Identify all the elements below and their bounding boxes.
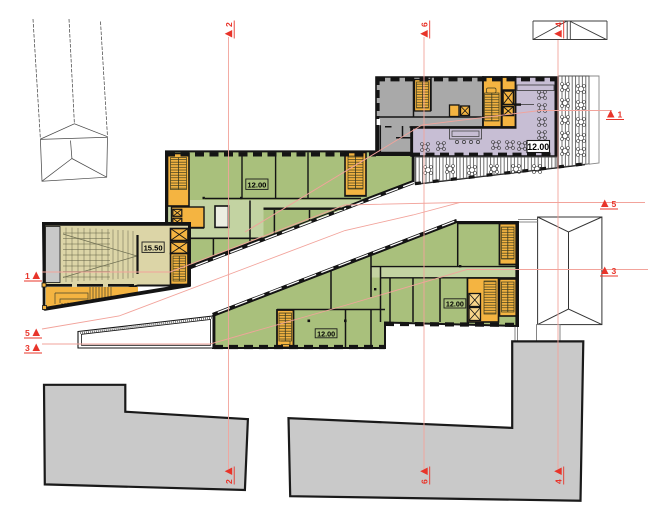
svg-text:12.00: 12.00: [247, 180, 266, 189]
svg-text:6: 6: [420, 479, 430, 484]
svg-text:12.00: 12.00: [527, 142, 549, 152]
svg-text:5: 5: [612, 199, 617, 209]
svg-text:2: 2: [224, 479, 234, 484]
svg-text:3: 3: [25, 343, 30, 353]
svg-text:4: 4: [554, 22, 564, 27]
svg-text:5: 5: [25, 328, 30, 338]
svg-text:4: 4: [554, 479, 564, 484]
svg-text:1: 1: [25, 271, 30, 281]
svg-text:1: 1: [618, 110, 623, 120]
svg-text:12.00: 12.00: [446, 300, 464, 309]
svg-text:15.50: 15.50: [144, 243, 163, 252]
svg-text:3: 3: [612, 266, 617, 276]
svg-text:6: 6: [420, 22, 430, 27]
svg-text:12.00: 12.00: [317, 329, 335, 338]
svg-text:2: 2: [224, 22, 234, 27]
